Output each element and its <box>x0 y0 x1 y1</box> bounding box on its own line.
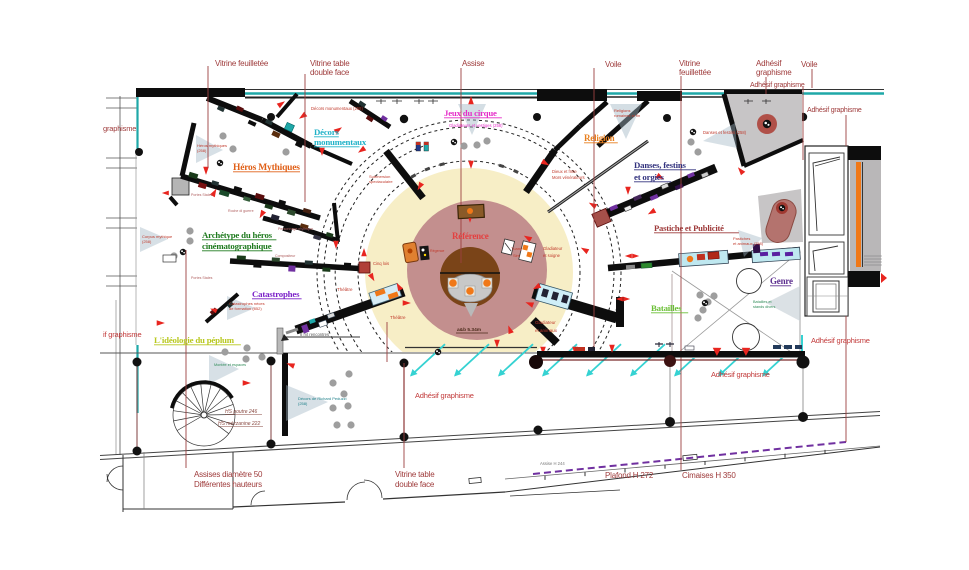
svg-text:Différentes hauteurs: Différentes hauteurs <box>194 480 262 489</box>
svg-text:Assise H 244: Assise H 244 <box>540 461 565 466</box>
svg-text:Décors monumentaux (258): Décors monumentaux (258) <box>311 106 364 111</box>
svg-text:Jeux du cirque: Jeux du cirque <box>444 108 497 118</box>
svg-text:Théâtre: Théâtre <box>390 315 406 320</box>
svg-text:feuillettée: feuillettée <box>679 68 712 77</box>
svg-text:et soigne: et soigne <box>543 253 561 258</box>
svg-text:Adhésif: Adhésif <box>756 59 782 68</box>
svg-text:Cinq lois: Cinq lois <box>373 261 389 266</box>
svg-text:L'idéologie du péplum: L'idéologie du péplum <box>154 335 235 345</box>
svg-text:Adhésif graphisme: Adhésif graphisme <box>711 370 770 379</box>
svg-text:Théâtre: Théâtre <box>337 287 353 292</box>
svg-text:Vitrine table: Vitrine table <box>395 470 435 479</box>
svg-text:Archétype du héros: Archétype du héros <box>202 230 273 240</box>
svg-text:Sim: Sim <box>513 253 521 258</box>
svg-text:Référence: Référence <box>452 231 489 241</box>
svg-text:Portes Stales: Portes Stales <box>191 276 213 280</box>
svg-text:et animaux (258): et animaux (258) <box>733 241 764 246</box>
svg-text:Gladiateur: Gladiateur <box>535 320 556 325</box>
svg-text:Catastrophes: Catastrophes <box>252 289 300 299</box>
svg-text:cinématographique: cinématographique <box>202 241 272 251</box>
svg-text:Adhésif graphisme: Adhésif graphisme <box>807 107 862 114</box>
svg-text:a&b 5.34m: a&b 5.34m <box>457 327 481 333</box>
svg-text:Gladiateur: Gladiateur <box>543 246 563 251</box>
svg-text:Cimaises H 350: Cimaises H 350 <box>682 471 736 480</box>
svg-text:Adhésif graphisme: Adhésif graphisme <box>415 391 474 400</box>
svg-text:et animaux: et animaux <box>535 328 558 333</box>
svg-text:Décors: Décors <box>314 127 339 137</box>
svg-text:graphisme: graphisme <box>103 124 136 133</box>
svg-text:if graphisme: if graphisme <box>103 330 141 339</box>
svg-text:Assises diamètre 50: Assises diamètre 50 <box>194 470 263 479</box>
svg-text:Danses, festins: Danses, festins <box>634 160 687 170</box>
svg-text:Montée et espaces: Montée et espaces <box>214 363 246 367</box>
svg-text:Régence: Régence <box>430 249 444 253</box>
svg-text:Pastiche et Publicité: Pastiche et Publicité <box>654 223 724 233</box>
svg-text:Vitrine: Vitrine <box>679 59 701 68</box>
svg-text:stands divers: stands divers <box>753 305 775 309</box>
svg-text:double face: double face <box>310 68 350 77</box>
svg-text:Adhésif graphisme: Adhésif graphisme <box>750 82 805 89</box>
svg-text:Batailles: Batailles <box>651 303 682 313</box>
svg-text:Mors vénérateurs: Mors vénérateurs <box>552 175 585 180</box>
svg-text:monumentaux: monumentaux <box>314 137 367 147</box>
svg-text:Voile: Voile <box>605 60 622 69</box>
svg-text:Tuany: Tuany <box>511 246 522 251</box>
svg-text:Religion: Religion <box>584 133 615 143</box>
svg-text:Compositeur: Compositeur <box>275 254 296 258</box>
svg-text:spectaculaire: spectaculaire <box>369 179 393 184</box>
svg-text:Adhésif graphisme: Adhésif graphisme <box>811 336 870 345</box>
svg-text:Genre: Genre <box>770 276 793 286</box>
svg-text:Assise: Assise <box>462 59 485 68</box>
svg-text:double face: double face <box>395 480 435 489</box>
svg-text:et orgies: et orgies <box>634 172 664 182</box>
svg-text:HS mézzanine 222: HS mézzanine 222 <box>218 421 260 427</box>
svg-text:de formation (852): de formation (852) <box>229 306 262 311</box>
svg-text:(258): (258) <box>142 239 152 244</box>
svg-text:(258): (258) <box>197 148 207 153</box>
svg-text:Plafond H 272: Plafond H 272 <box>605 471 654 480</box>
svg-text:Batailles et: Batailles et <box>753 300 773 304</box>
svg-text:Danses et festins (258): Danses et festins (258) <box>703 130 747 135</box>
svg-text:Voile: Voile <box>801 60 818 69</box>
svg-text:graphisme: graphisme <box>756 68 792 77</box>
svg-text:Gladiateurs et vestiges (258): Gladiateurs et vestiges (258) <box>449 123 503 128</box>
svg-text:(258): (258) <box>298 401 308 406</box>
svg-text:Vitrine table: Vitrine table <box>310 59 350 68</box>
svg-text:romaines et fin: romaines et fin <box>614 113 640 118</box>
svg-text:HS poutre 246: HS poutre 246 <box>225 409 257 415</box>
svg-text:Portes Stales: Portes Stales <box>191 193 213 197</box>
svg-text:Personnage mythique: Personnage mythique <box>278 227 313 231</box>
svg-text:Roche di guerre: Roche di guerre <box>228 209 254 213</box>
svg-text:Dieux et fmte: Dieux et fmte <box>552 169 577 174</box>
svg-text:Vitrine feuilletée: Vitrine feuilletée <box>215 59 269 68</box>
